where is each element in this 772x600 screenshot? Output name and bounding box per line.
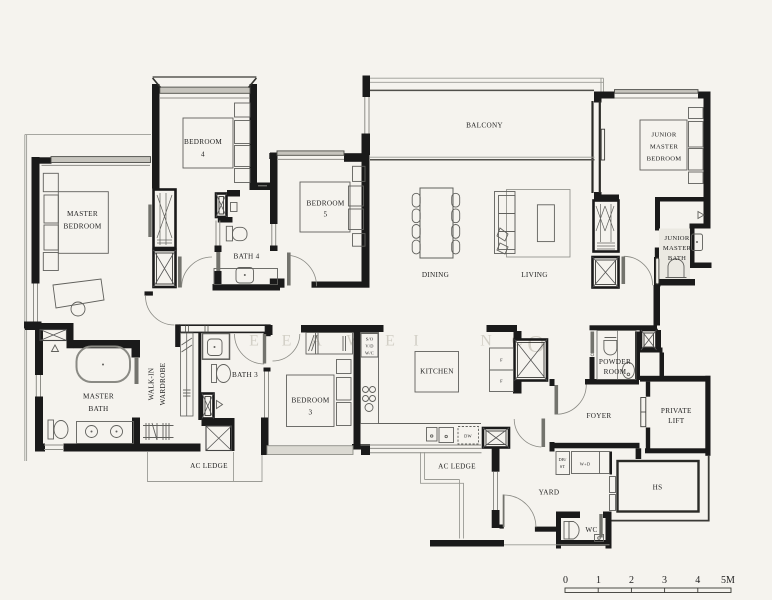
svg-text:HS: HS	[653, 484, 663, 492]
svg-text:BEDROOM: BEDROOM	[306, 200, 344, 208]
svg-text:BEDROOM: BEDROOM	[63, 223, 101, 231]
svg-text:2: 2	[629, 575, 634, 586]
svg-text:BATH 4: BATH 4	[234, 253, 260, 261]
svg-text:N: N	[480, 333, 492, 350]
svg-text:JUNIOR: JUNIOR	[665, 235, 690, 242]
svg-text:O: O	[527, 332, 544, 358]
svg-text:5: 5	[324, 211, 328, 219]
svg-text:BEDROOM: BEDROOM	[184, 138, 222, 146]
svg-text:DB/: DB/	[559, 457, 567, 462]
svg-text:E: E	[282, 333, 292, 350]
svg-text:I: I	[413, 333, 418, 350]
svg-text:E: E	[385, 333, 395, 350]
svg-text:WALK-IN: WALK-IN	[148, 367, 156, 400]
svg-text:KITCHEN: KITCHEN	[420, 368, 454, 376]
svg-text:MASTER: MASTER	[67, 210, 98, 218]
svg-text:WARDROBE: WARDROBE	[159, 362, 167, 405]
svg-text:4: 4	[201, 151, 205, 159]
svg-text:5M: 5M	[721, 575, 735, 586]
svg-text:AC LEDGE: AC LEDGE	[190, 462, 228, 470]
svg-text:W/C: W/C	[365, 351, 374, 356]
svg-text:AC LEDGE: AC LEDGE	[438, 463, 476, 471]
svg-text:FOYER: FOYER	[586, 412, 611, 420]
svg-text:YARD: YARD	[539, 489, 560, 497]
svg-text:4: 4	[695, 575, 700, 586]
svg-text:DINING: DINING	[422, 271, 449, 279]
svg-text:BALCONY: BALCONY	[466, 122, 503, 130]
svg-text:0: 0	[563, 575, 568, 586]
svg-text:BATH: BATH	[89, 405, 109, 413]
svg-text:F: F	[500, 358, 503, 363]
svg-text:V/D: V/D	[365, 344, 373, 349]
svg-text:WC: WC	[585, 526, 597, 534]
svg-text:F: F	[500, 379, 503, 384]
svg-text:POWDER: POWDER	[599, 358, 631, 366]
svg-text:S/O: S/O	[366, 337, 373, 342]
svg-text:ST: ST	[560, 464, 566, 469]
svg-text:BEDROOM: BEDROOM	[647, 156, 682, 163]
svg-text:W+D: W+D	[580, 462, 590, 467]
svg-text:MASTER: MASTER	[83, 393, 114, 401]
svg-text:3: 3	[662, 575, 667, 586]
svg-text:MASTER: MASTER	[650, 144, 679, 151]
svg-text:E: E	[249, 333, 259, 350]
svg-text:PRIVATE: PRIVATE	[661, 407, 692, 415]
svg-text:BATH 3: BATH 3	[232, 371, 258, 379]
svg-text:JUNIOR: JUNIOR	[652, 132, 677, 139]
svg-text:LIVING: LIVING	[521, 271, 548, 279]
svg-text:ROOM: ROOM	[604, 368, 627, 376]
svg-text:BEDROOM: BEDROOM	[291, 397, 329, 405]
svg-text:1: 1	[596, 575, 601, 586]
svg-text:BATH: BATH	[668, 255, 686, 262]
svg-text:DW: DW	[464, 434, 472, 439]
svg-text:MASTER: MASTER	[663, 245, 692, 252]
svg-text:3: 3	[309, 409, 313, 417]
svg-text:LIFT: LIFT	[668, 417, 685, 425]
